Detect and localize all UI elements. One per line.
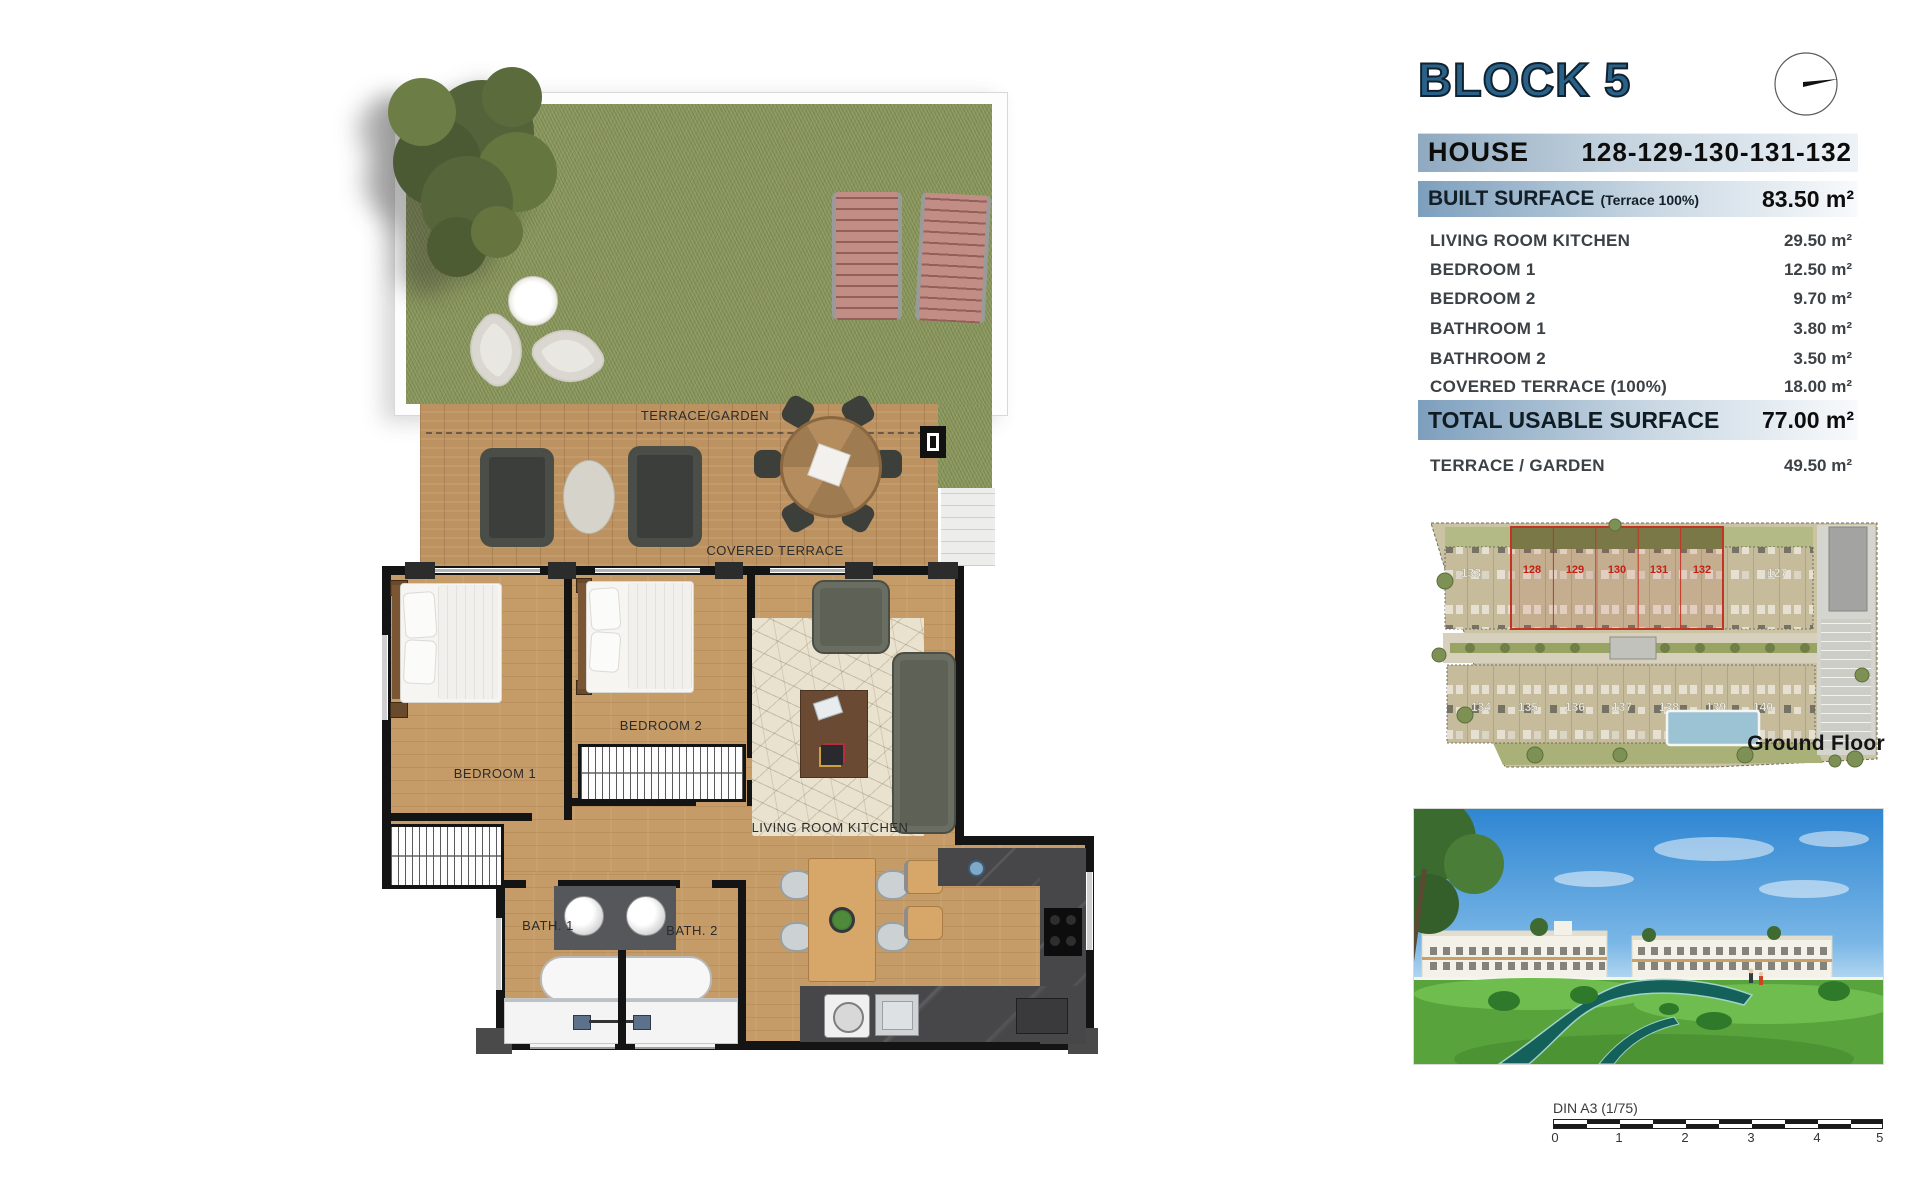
window xyxy=(1086,872,1093,950)
label-terrace-garden: TERRACE/GARDEN xyxy=(580,408,830,423)
table-row: COVERED TERRACE (100%) 18.00 m² xyxy=(1418,372,1858,401)
total-label: TOTAL USABLE SURFACE xyxy=(1418,407,1719,434)
svg-text:133: 133 xyxy=(1461,566,1481,580)
label-bath-1: BATH. 1 xyxy=(498,918,598,933)
wall-post xyxy=(548,562,576,579)
road-crossing xyxy=(1610,637,1656,659)
built-surface-label: BUILT SURFACE xyxy=(1418,187,1594,211)
row-label: COVERED TERRACE (100%) xyxy=(1418,377,1667,397)
svg-text:131: 131 xyxy=(1650,564,1668,576)
wall-post xyxy=(715,562,743,579)
wall xyxy=(382,813,532,821)
row-label: LIVING ROOM KITCHEN xyxy=(1418,231,1630,251)
wall-post xyxy=(845,562,873,579)
svg-text:136: 136 xyxy=(1565,700,1585,714)
development-photo xyxy=(1413,808,1884,1065)
tree-icon xyxy=(362,52,612,302)
cooktop xyxy=(1044,908,1082,956)
svg-text:135: 135 xyxy=(1518,700,1538,714)
row-value: 3.50 m² xyxy=(1793,349,1858,369)
built-surface-bar: BUILT SURFACE (Terrace 100%) 83.50 m² xyxy=(1418,181,1858,217)
burner xyxy=(1066,936,1076,946)
total-value: 77.00 m² xyxy=(1762,407,1858,434)
scale-bar: DIN A3 (1/75) 0 1 2 3 4 5 xyxy=(1553,1100,1883,1145)
label-covered-terrace: COVERED TERRACE xyxy=(660,543,890,558)
label-bedroom-1: BEDROOM 1 xyxy=(420,766,570,781)
row-value: 49.50 m² xyxy=(1784,456,1858,476)
svg-text:137: 137 xyxy=(1612,700,1632,714)
armchair xyxy=(812,580,890,654)
wall xyxy=(564,573,572,820)
outdoor-sofa xyxy=(480,448,554,547)
sink-basin xyxy=(882,1001,913,1030)
outdoor-table xyxy=(563,460,615,534)
pillow xyxy=(402,591,437,639)
table-decor xyxy=(821,745,843,765)
table-row: BEDROOM 1 12.50 m² xyxy=(1418,255,1858,284)
tick: 4 xyxy=(1813,1130,1820,1145)
pillow xyxy=(589,631,622,673)
window xyxy=(381,635,388,720)
outdoor-sofa xyxy=(628,446,702,547)
deck-chair xyxy=(754,450,782,478)
pillow xyxy=(403,639,437,685)
svg-text:128: 128 xyxy=(1523,564,1541,576)
table-row: BATHROOM 2 3.50 m² xyxy=(1418,344,1858,373)
svg-text:132: 132 xyxy=(1693,564,1711,576)
wall-post xyxy=(405,562,435,579)
burner xyxy=(1050,936,1060,946)
north-compass-icon xyxy=(1772,50,1840,118)
scale-label: DIN A3 (1/75) xyxy=(1553,1100,1883,1116)
row-value: 29.50 m² xyxy=(1784,231,1858,251)
scale-ticks: 0 1 2 3 4 5 xyxy=(1553,1129,1883,1145)
row-value: 3.80 m² xyxy=(1793,319,1858,339)
ground-floor-caption: Ground Floor xyxy=(1720,732,1885,756)
svg-text:129: 129 xyxy=(1566,564,1584,576)
wardrobe xyxy=(388,824,504,888)
washing-machine xyxy=(824,994,870,1038)
row-label: BEDROOM 2 xyxy=(1418,289,1536,309)
kitchen-sink xyxy=(875,994,919,1036)
row-label: BEDROOM 1 xyxy=(1418,260,1536,280)
label-living-room-kitchen: LIVING ROOM KITCHEN xyxy=(710,820,950,835)
label-bath-2: BATH. 2 xyxy=(642,923,742,938)
scale-ruler xyxy=(1553,1119,1883,1129)
sun-lounger xyxy=(832,192,902,320)
house-bar: HOUSE 128-129-130-131-132 xyxy=(1418,133,1858,172)
brochure-page: TERRACE/GARDEN COVERED TERRACE BEDROOM 1… xyxy=(0,0,1920,1193)
floor-plan: TERRACE/GARDEN COVERED TERRACE BEDROOM 1… xyxy=(380,80,1120,1070)
wall xyxy=(955,566,964,844)
sofa xyxy=(892,652,956,834)
wardrobe xyxy=(578,744,746,802)
svg-text:134: 134 xyxy=(1471,700,1491,714)
wall-post xyxy=(928,562,958,579)
shower-rail xyxy=(589,1020,633,1023)
pillow xyxy=(589,587,622,631)
table-row: BEDROOM 2 9.70 m² xyxy=(1418,284,1858,313)
terrace-pillar xyxy=(920,426,946,458)
svg-text:127: 127 xyxy=(1767,566,1787,580)
duvet xyxy=(438,585,498,699)
row-label: BATHROOM 1 xyxy=(1418,319,1546,339)
svg-text:130: 130 xyxy=(1608,564,1626,576)
bed-headboard xyxy=(392,585,400,699)
bathtub xyxy=(540,956,712,1002)
highlight-outline xyxy=(1511,527,1723,629)
wall xyxy=(618,950,626,1050)
second-sink xyxy=(1016,998,1068,1034)
sliding-door-glass xyxy=(595,568,700,573)
row-value: 18.00 m² xyxy=(1784,377,1858,397)
row-label: TERRACE / GARDEN xyxy=(1418,456,1605,476)
wall xyxy=(738,880,746,1050)
washer-drum xyxy=(833,1002,864,1033)
house-label: HOUSE xyxy=(1418,137,1529,168)
bed-headboard xyxy=(578,583,586,689)
tick: 5 xyxy=(1876,1130,1883,1145)
book xyxy=(813,695,843,720)
duvet xyxy=(628,583,692,689)
shower-fixture xyxy=(633,1015,651,1030)
built-surface-value: 83.50 m² xyxy=(1762,186,1858,213)
row-label: BATHROOM 2 xyxy=(1418,349,1546,369)
sun-lounger xyxy=(915,192,992,323)
nightstand xyxy=(390,702,408,718)
site-building xyxy=(1829,527,1867,611)
sliding-door-glass xyxy=(770,568,850,573)
tick: 3 xyxy=(1747,1130,1754,1145)
tick: 1 xyxy=(1615,1130,1622,1145)
table-row: BATHROOM 1 3.80 m² xyxy=(1418,314,1858,343)
dining-table xyxy=(808,858,876,982)
burner xyxy=(1050,915,1060,925)
built-surface-note: (Terrace 100%) xyxy=(1600,192,1699,208)
side-walkway xyxy=(938,488,995,566)
tick: 2 xyxy=(1681,1130,1688,1145)
burner xyxy=(1066,915,1076,925)
coffee-table xyxy=(800,690,868,778)
sliding-door-glass xyxy=(425,568,540,573)
plant-centerpiece xyxy=(832,910,852,930)
scale-ruler-bottom xyxy=(1554,1124,1882,1128)
bar-stool xyxy=(904,906,943,940)
house-numbers: 128-129-130-131-132 xyxy=(1581,137,1858,168)
row-value: 12.50 m² xyxy=(1784,260,1858,280)
tick: 0 xyxy=(1551,1130,1558,1145)
row-value: 9.70 m² xyxy=(1793,289,1858,309)
table-row: TERRACE / GARDEN 49.50 m² xyxy=(1418,450,1858,482)
kitchen-faucet xyxy=(968,860,985,877)
grass-strip xyxy=(938,404,992,488)
total-surface-bar: TOTAL USABLE SURFACE 77.00 m² xyxy=(1418,400,1858,440)
table-row: LIVING ROOM KITCHEN 29.50 m² xyxy=(1418,226,1858,255)
label-bedroom-2: BEDROOM 2 xyxy=(586,718,736,733)
page-title: BLOCK 5 xyxy=(1418,52,1631,107)
wall xyxy=(955,836,1094,845)
